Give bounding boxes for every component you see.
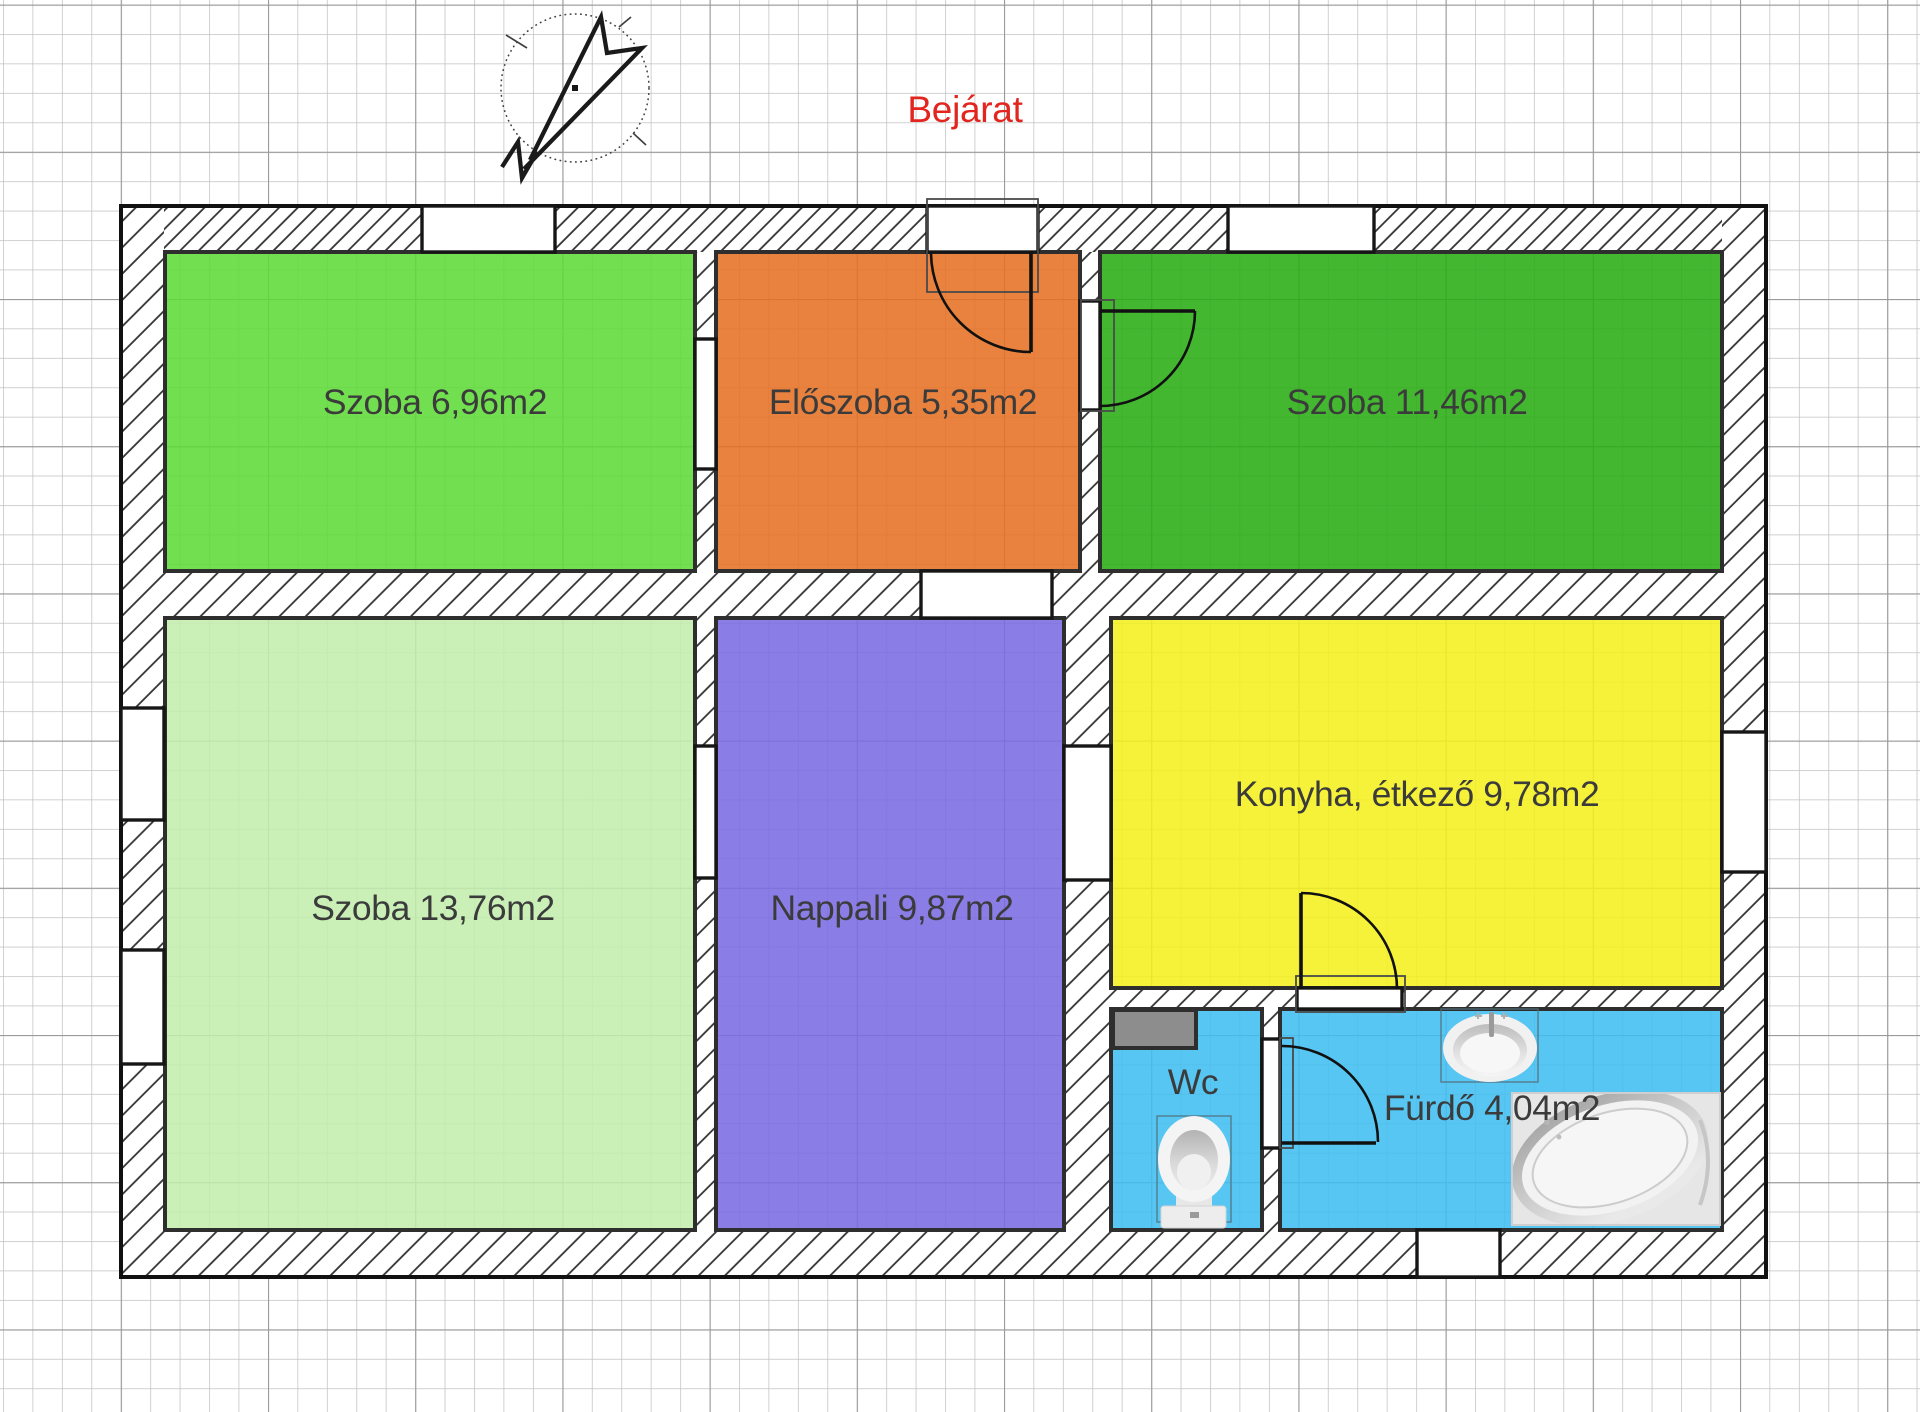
svg-text:Konyha, étkező 9,78m2: Konyha, étkező 9,78m2 [1235, 774, 1600, 814]
svg-text:Szoba 6,96m2: Szoba 6,96m2 [323, 382, 547, 422]
svg-text:Szoba 13,76m2: Szoba 13,76m2 [311, 888, 554, 928]
svg-text:Wc: Wc [1168, 1062, 1218, 1102]
svg-text:Nappali 9,87m2: Nappali 9,87m2 [770, 888, 1013, 928]
svg-text:Szoba 11,46m2: Szoba 11,46m2 [1287, 382, 1528, 422]
svg-text:Fürdő 4,04m2: Fürdő 4,04m2 [1384, 1088, 1600, 1128]
svg-text:Bejárat: Bejárat [907, 89, 1023, 130]
svg-text:Előszoba 5,35m2: Előszoba 5,35m2 [769, 382, 1037, 422]
